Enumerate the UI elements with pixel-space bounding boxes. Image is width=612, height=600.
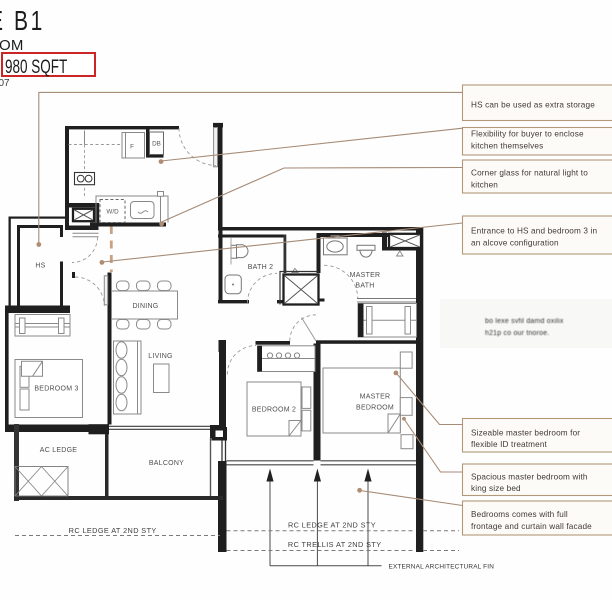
svg-text:BEDROOM 3: BEDROOM 3	[34, 386, 78, 393]
svg-text:F: F	[130, 144, 134, 151]
svg-text:BATH: BATH	[355, 283, 374, 290]
svg-text:Corner glass for natural light: Corner glass for natural light to	[471, 169, 588, 178]
svg-text:DB: DB	[152, 141, 161, 148]
svg-text:DINING: DINING	[133, 303, 159, 310]
svg-text:W/D: W/D	[106, 209, 119, 216]
svg-text:MASTER: MASTER	[350, 272, 381, 279]
svg-text:kitchen: kitchen	[471, 181, 498, 190]
svg-text:flexible ID treatment: flexible ID treatment	[471, 440, 548, 449]
svg-text:Bedrooms comes with full: Bedrooms comes with full	[471, 510, 568, 519]
svg-text:Sizeable master bedroom for: Sizeable master bedroom for	[471, 429, 580, 438]
svg-text:Spacious master bedroom with: Spacious master bedroom with	[471, 473, 588, 482]
svg-text:EXTERNAL ARCHITECTURAL FIN: EXTERNAL ARCHITECTURAL FIN	[389, 564, 495, 571]
svg-text:RC TRELLIS AT 2ND STY: RC TRELLIS AT 2ND STY	[288, 540, 382, 549]
svg-text:kitchen themselves: kitchen themselves	[471, 142, 543, 151]
svg-text:RC LEDGE AT 2ND STY: RC LEDGE AT 2ND STY	[69, 526, 157, 535]
svg-text:king size bed: king size bed	[471, 484, 521, 493]
svg-text:BATH 2: BATH 2	[248, 264, 274, 271]
svg-text:BEDROOM 2: BEDROOM 2	[252, 407, 296, 414]
svg-text:frontage and curtain wall faca: frontage and curtain wall facade	[471, 522, 592, 531]
svg-text:MASTER: MASTER	[360, 394, 391, 401]
svg-text:HS can be used as extra storag: HS can be used as extra storage	[471, 101, 595, 110]
svg-text:BALCONY: BALCONY	[149, 460, 184, 467]
svg-text:HS: HS	[35, 263, 45, 270]
svg-text:BEDROOM: BEDROOM	[356, 405, 394, 412]
svg-text:Flexibility for buyer to enclo: Flexibility for buyer to enclose	[471, 130, 584, 139]
svg-text:LIVING: LIVING	[148, 353, 172, 360]
svg-text:an alcove configuration: an alcove configuration	[471, 239, 559, 248]
svg-text:RC LEDGE AT 2ND STY: RC LEDGE AT 2ND STY	[288, 521, 376, 530]
svg-text:AC LEDGE: AC LEDGE	[40, 447, 77, 454]
svg-text:Entrance to HS and bedroom 3 i: Entrance to HS and bedroom 3 in	[471, 227, 597, 236]
